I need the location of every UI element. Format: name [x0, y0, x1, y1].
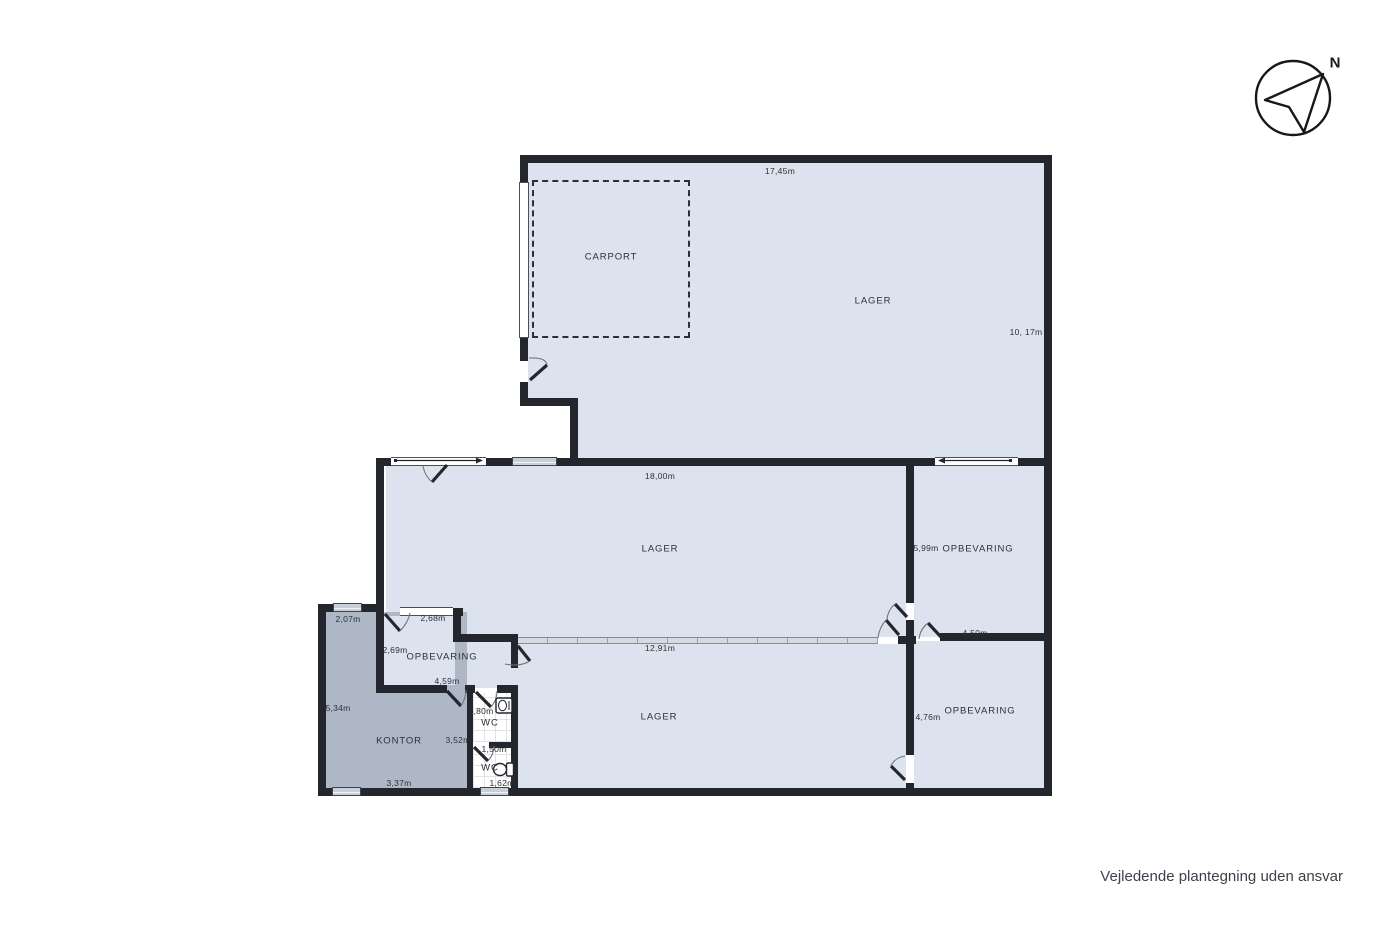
- wall-opbw-bottom-a: [376, 685, 447, 693]
- label-lager-top: LAGER: [855, 296, 892, 307]
- dim-kontor-bottom: 3,37m: [386, 778, 411, 788]
- wall-right: [1044, 155, 1052, 796]
- dim-opbevaring-se-width: 4,50m: [962, 628, 987, 638]
- dim-opbevaring-ne-height: 5,99m: [913, 543, 938, 553]
- compass-needle: [1265, 74, 1323, 132]
- vestibule-floor: [461, 642, 518, 688]
- wall-corridor-stub: [511, 638, 518, 668]
- label-lager-bottom: LAGER: [641, 712, 678, 723]
- dim-kontor-top: 2,07m: [335, 614, 360, 624]
- dim-kontor-right: 3,52m: [445, 735, 470, 745]
- wall-top: [520, 155, 1052, 163]
- wall-mid-left: [376, 458, 384, 693]
- window-bottom-wc: [480, 787, 509, 796]
- label-lager-mid: LAGER: [642, 544, 679, 555]
- label-wc-bottom: WC: [481, 763, 499, 774]
- dim-kontor-left: 5,34m: [325, 703, 350, 713]
- compass: [1256, 61, 1330, 135]
- compass-circle: [1256, 61, 1330, 135]
- wall-kontor-left: [318, 604, 326, 796]
- dim-opbevaring-w-left: 2,69m: [382, 645, 407, 655]
- wall-junction-block: [898, 636, 916, 644]
- wall-lager-opb-vertical-a: [906, 466, 914, 603]
- window-mid-top: [512, 457, 557, 466]
- wall-corridor-top: [453, 634, 518, 642]
- label-wc-top: WC: [481, 718, 499, 729]
- dim-opbevaring-w-top: 2,68m: [420, 613, 445, 623]
- wall-opbse-top: [940, 633, 1052, 641]
- sliding-partition: [518, 637, 878, 644]
- wall-wc-right: [511, 685, 518, 788]
- disclaimer-text: Vejledende plantegning uden ansvar: [1100, 868, 1343, 885]
- dim-wc-bottom-width: 1,62m: [489, 778, 514, 788]
- sliding-door-ne: [935, 457, 1018, 466]
- dim-opbevaring-w-bottom: 4,59m: [434, 676, 459, 686]
- window-kontor-top: [333, 603, 362, 612]
- dim-lager-mid-width: 18,00m: [645, 471, 675, 481]
- wall-left-stub-1: [520, 155, 528, 182]
- window-bottom-kontor: [332, 787, 361, 796]
- wall-left-stub-2: [520, 338, 528, 361]
- floor-plan-canvas: CARPORT LAGER LAGER LAGER OPBEVARING OPB…: [0, 0, 1400, 933]
- compass-north-label: N: [1330, 55, 1341, 72]
- label-opbevaring-w: OPBEVARING: [406, 652, 477, 663]
- label-opbevaring-se: OPBEVARING: [944, 706, 1015, 717]
- wall-opbw-bottom-b: [465, 685, 475, 693]
- wall-step-vertical: [570, 398, 578, 466]
- room-lager-bottom-floor: [518, 644, 906, 788]
- dim-wc-divider: 1,50m: [481, 744, 506, 754]
- wall-bottom: [318, 788, 1052, 796]
- dim-lager-top-height: 10, 17m: [1010, 327, 1043, 337]
- sliding-door-mid-top: [391, 457, 486, 466]
- label-opbevaring-ne: OPBEVARING: [942, 544, 1013, 555]
- garage-opening: [519, 182, 529, 338]
- entry-door-gap: [520, 361, 528, 382]
- wall-lager-opb-vertical-c: [906, 783, 914, 788]
- dim-partition: 12,91m: [645, 643, 675, 653]
- dim-opbevaring-se-height: 4,76m: [915, 712, 940, 722]
- dim-wc-top-width: 1,80m: [468, 706, 493, 716]
- label-kontor: KONTOR: [376, 736, 422, 747]
- label-carport: CARPORT: [585, 252, 638, 263]
- dim-lager-top-width: 17,45m: [765, 166, 795, 176]
